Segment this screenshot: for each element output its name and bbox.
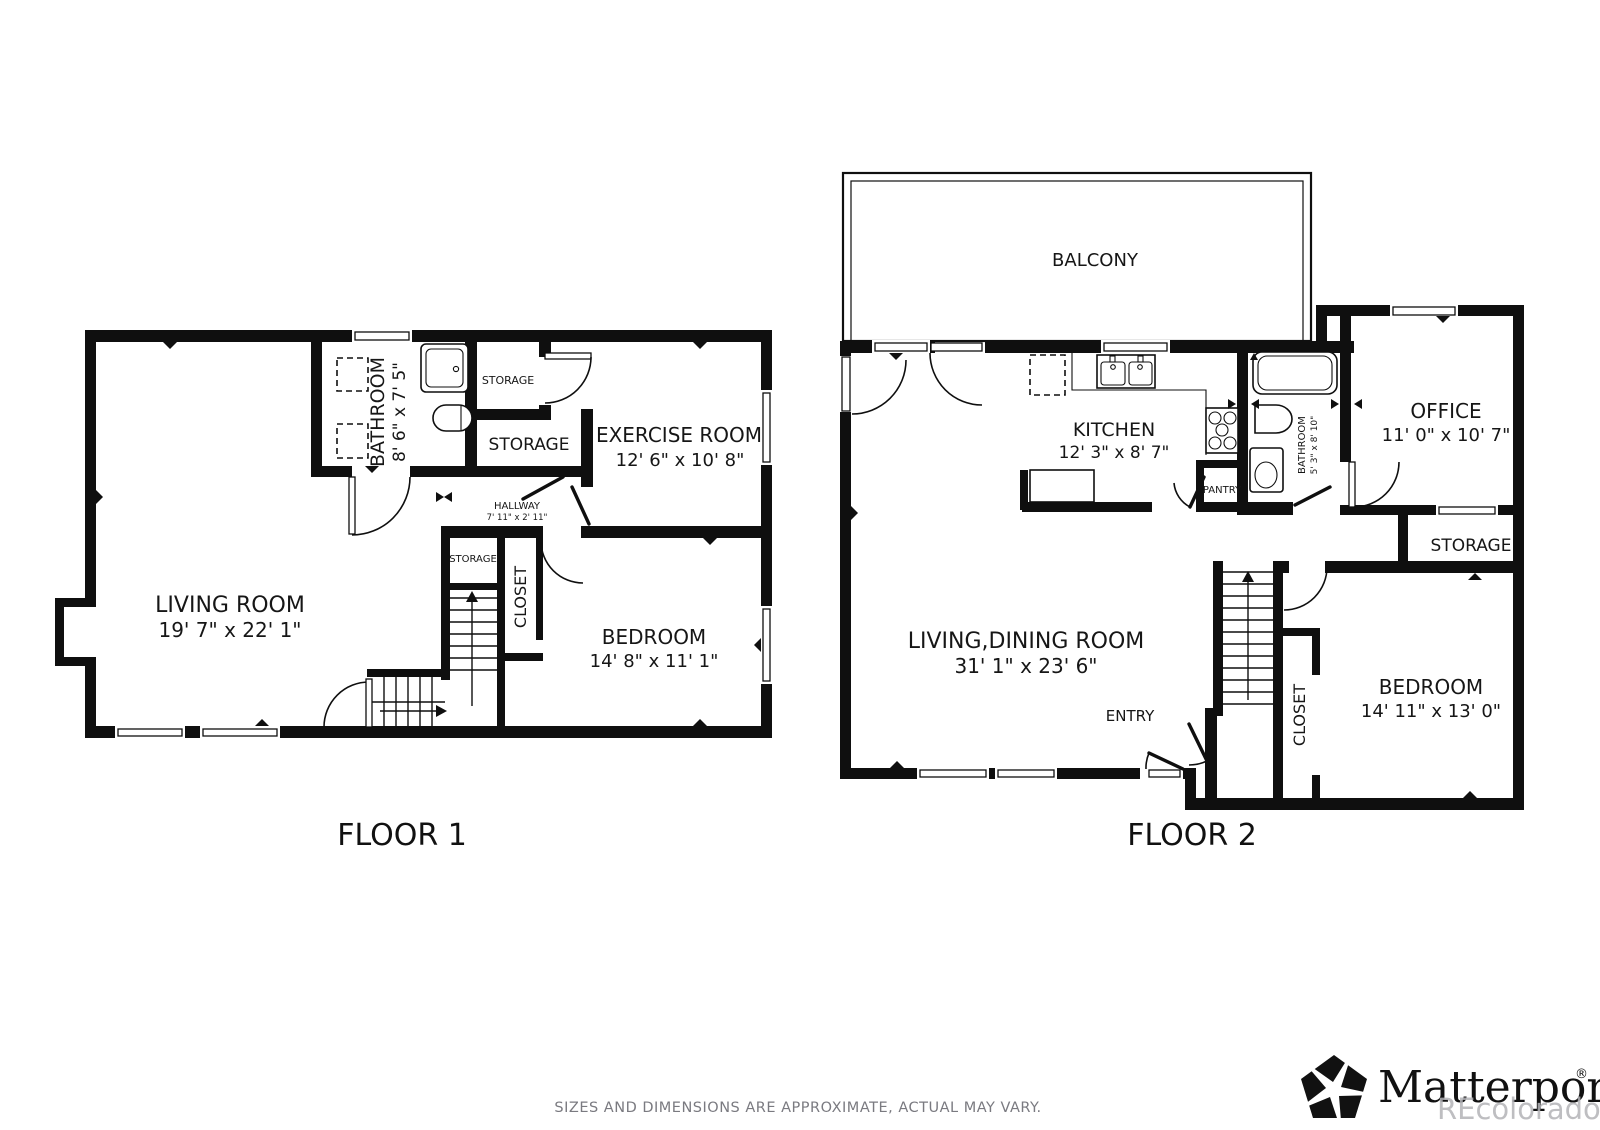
room-label-closet-f2: CLOSET: [1290, 684, 1309, 746]
room-label-bathroom-f1: BATHROOM: [367, 357, 389, 467]
room-label-kitchen-f2: KITCHEN: [1073, 419, 1155, 441]
toilet-icon: [1250, 448, 1283, 492]
matterport-logo-icon: [1296, 1050, 1378, 1130]
room-dims-office-f2: 11' 0" x 10' 7": [1382, 425, 1511, 446]
room-label-storage-top-f1: STORAGE: [482, 374, 534, 387]
room-label-office-f2: OFFICE: [1410, 399, 1481, 423]
room-dims-livingdining-f2: 31' 1" x 23' 6": [954, 654, 1097, 678]
room-label-storage-mid-f1: STORAGE: [489, 435, 570, 455]
floor1-walls: [55, 330, 772, 738]
room-dims-bathroom-f2: 5' 3" x 8' 10": [1310, 416, 1320, 475]
room-label-bathroom-f2: BATHROOM: [1297, 416, 1308, 474]
bathroom-sink-icon: [1255, 405, 1292, 433]
room-dims-bathroom-f1: 8' 6" x 7' 5": [390, 362, 410, 462]
skylight-icon: [1030, 355, 1065, 395]
room-dims-exercise-f1: 12' 6" x 10' 8": [616, 450, 745, 471]
floor1-title: FLOOR 1: [337, 818, 467, 853]
room-dims-living-f1: 19' 7" x 22' 1": [158, 618, 301, 642]
floorplan-canvas: BATHROOM 8' 6" x 7' 5" STORAGE STORAGE E…: [0, 0, 1600, 1130]
floor2-bathroom-fixtures: [1250, 352, 1337, 492]
room-dims-bedroom-f2: 14' 11" x 13' 0": [1361, 701, 1501, 722]
room-label-livingdining-f2: LIVING,DINING ROOM: [908, 629, 1145, 654]
floor2-ticks: [851, 316, 1482, 798]
floor2-walls: [840, 305, 1524, 810]
room-label-exercise-f1: EXERCISE ROOM: [596, 423, 762, 447]
floor2-stairs: [1223, 571, 1273, 704]
watermark-text: REcolorado: [1437, 1092, 1600, 1126]
room-label-storage-small-f1: STORAGE: [449, 554, 497, 565]
toilet-icon: [433, 405, 472, 431]
skylight-icon: [337, 358, 368, 391]
room-label-balcony-f2: BALCONY: [1052, 250, 1139, 271]
bathtub-icon: [1253, 352, 1337, 394]
room-label-storage-f2: STORAGE: [1431, 536, 1512, 556]
skylight-icon: [337, 424, 368, 458]
room-label-living-f1: LIVING ROOM: [155, 593, 305, 618]
disclaimer-text: SIZES AND DIMENSIONS ARE APPROXIMATE, AC…: [554, 1100, 1041, 1116]
room-label-hallway-f1: HALLWAY: [494, 501, 541, 512]
room-label-entry-f2: ENTRY: [1106, 707, 1155, 725]
floorplan-page: BATHROOM 8' 6" x 7' 5" STORAGE STORAGE E…: [0, 0, 1600, 1130]
kitchen-island-icon: [1030, 470, 1094, 502]
room-dims-hallway-f1: 7' 11" x 2' 11": [487, 513, 548, 523]
floor1-stairs: [372, 591, 497, 726]
room-dims-bedroom-f1: 14' 8" x 11' 1": [590, 651, 719, 672]
floor2-title: FLOOR 2: [1127, 818, 1257, 853]
floor2-doors: [842, 343, 1399, 769]
room-label-bedroom-f2: BEDROOM: [1379, 675, 1483, 699]
stove-icon: [1206, 408, 1238, 453]
floor1-plan: BATHROOM 8' 6" x 7' 5" STORAGE STORAGE E…: [55, 329, 773, 853]
room-dims-kitchen-f2: 12' 3" x 8' 7": [1059, 443, 1170, 463]
room-label-bedroom-f1: BEDROOM: [602, 625, 706, 649]
registered-mark: ®: [1575, 1067, 1588, 1082]
floor2-plan: BALCONY KITCHEN 12' 3" x 8' 7" PANTRY BA…: [840, 173, 1524, 853]
shower-icon: [421, 344, 468, 392]
room-label-pantry-f2: PANTRY: [1203, 485, 1242, 496]
room-label-closet-f1: CLOSET: [511, 566, 530, 628]
kitchen-sink-icon: [1097, 355, 1155, 388]
